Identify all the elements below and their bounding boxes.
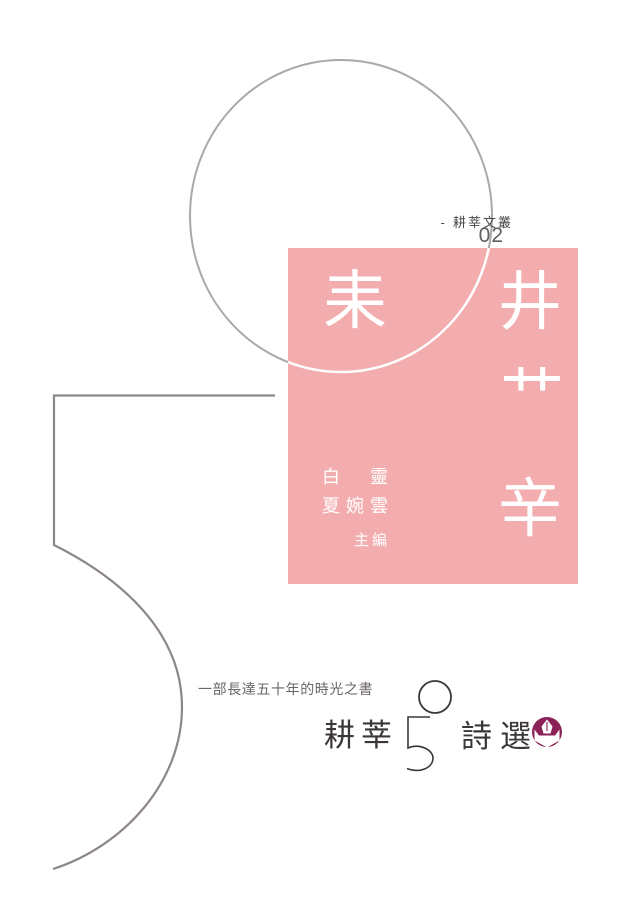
deco-char-jing: 井 xyxy=(498,271,562,335)
title-part-1: 耕莘 xyxy=(324,719,398,753)
tagline: 一部長達五十年的時光之書 xyxy=(198,679,373,699)
series-number: 02 xyxy=(479,224,504,248)
editor-role: 主編 xyxy=(354,529,390,550)
numeral-5-shape xyxy=(407,717,433,770)
book-cover: - 耕莘文叢 02 耒 井 艹 辛 白 靈 夏婉雲 主編 一部長達五十年的時光之… xyxy=(0,0,635,901)
numeral-0-shape xyxy=(419,681,451,713)
big-five-shape xyxy=(53,396,275,870)
title-part-2: 詩選 xyxy=(461,720,539,754)
deco-char-lei: 耒 xyxy=(323,270,387,334)
deco-char-xin: 辛 xyxy=(498,478,562,542)
deco-char-cao: 艹 xyxy=(500,365,564,429)
cover-shapes xyxy=(0,0,635,901)
editor-name-2: 夏婉雲 xyxy=(322,492,394,518)
editor-name-1: 白 靈 xyxy=(322,463,394,489)
